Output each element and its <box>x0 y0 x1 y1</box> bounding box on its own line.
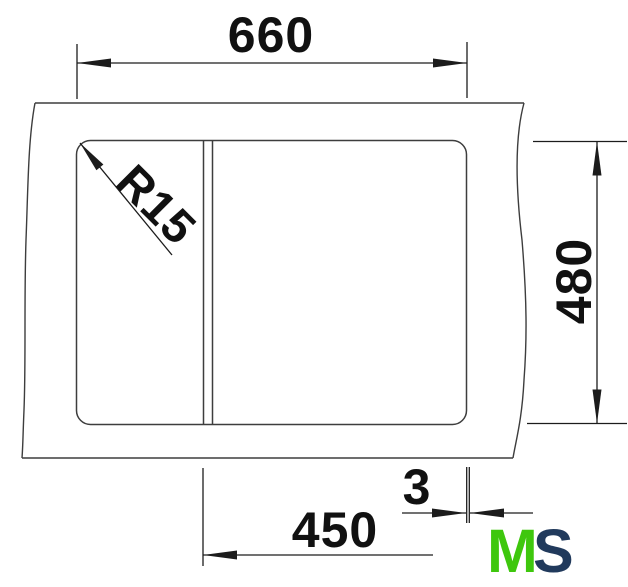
radius-label: R15 <box>106 154 207 255</box>
radius-arrowhead <box>80 143 103 170</box>
dimension-labels: 660 480 450 3 R15 <box>106 7 602 558</box>
dim-480-arrow-up <box>593 142 602 176</box>
dim-3-label: 3 <box>403 459 432 515</box>
countertop-right-break-line <box>513 103 526 458</box>
dim-450-label: 450 <box>292 502 378 558</box>
dim-480-label: 480 <box>546 238 602 324</box>
dimension-lines <box>77 42 627 566</box>
dim-450-arrow-left <box>203 551 237 560</box>
dim-480-arrow-down <box>593 390 602 424</box>
logo-letter-s: S <box>533 517 572 585</box>
dim-660-arrow-left <box>77 59 111 68</box>
arrowheads <box>77 59 602 560</box>
countertop-left-break-line <box>22 103 35 458</box>
dim-3-arrow-right <box>432 509 466 518</box>
technical-drawing-page: 660 480 450 3 R15 M S <box>0 0 628 587</box>
logo-letter-m: M <box>487 517 536 585</box>
countertop-outline <box>22 103 526 458</box>
brand-logo: M S <box>487 517 572 585</box>
dim-660-label: 660 <box>228 7 314 63</box>
dim-660-arrow-right <box>433 59 467 68</box>
sink-cutout-drawing: 660 480 450 3 R15 M S <box>0 0 628 587</box>
